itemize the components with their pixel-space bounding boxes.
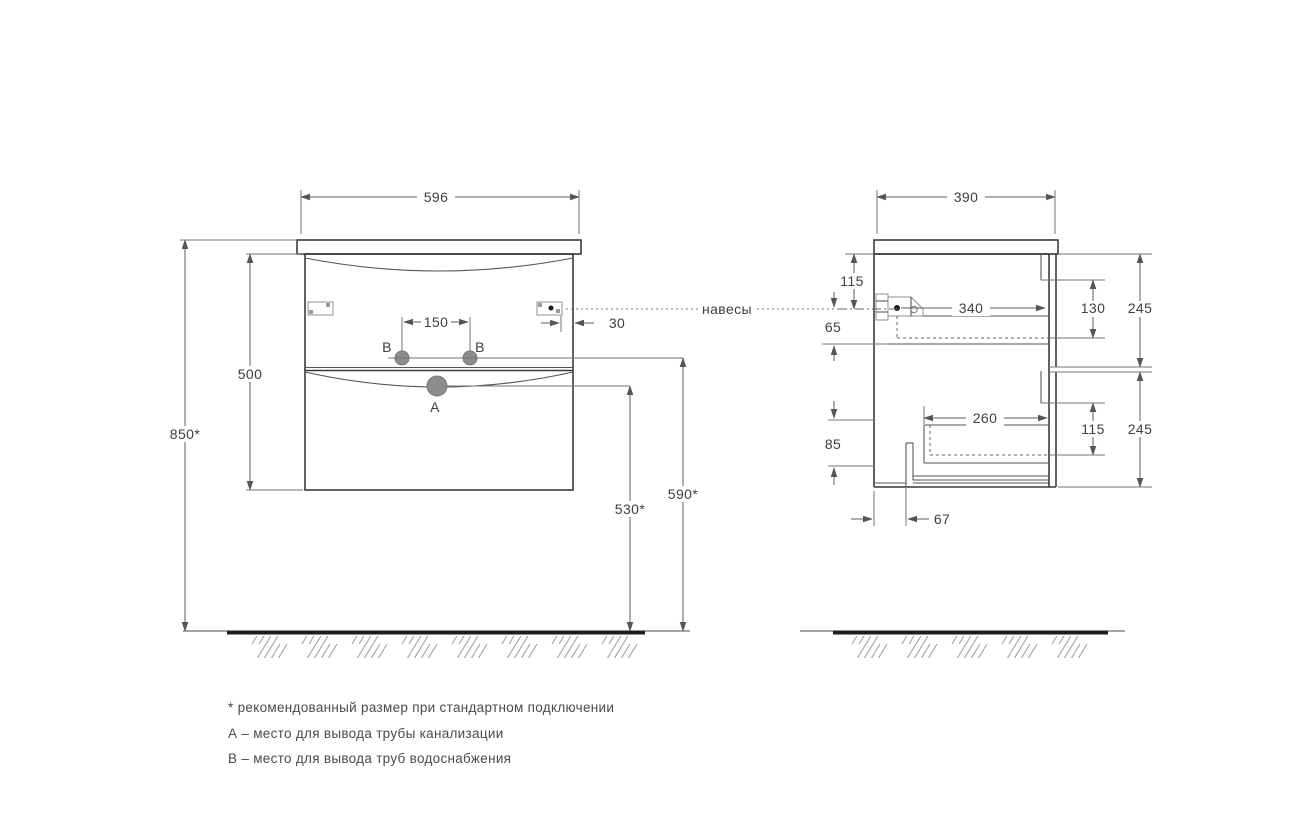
dim-390-label: 390	[954, 189, 979, 205]
floor-hatch-front	[250, 636, 638, 658]
side-countertop	[874, 240, 1058, 254]
dim-596-label: 596	[424, 189, 449, 205]
front-top-drawer-curve	[305, 258, 573, 271]
hinge-plate-left-screw-tr	[326, 303, 330, 307]
hinge-plate-left-screw-bl	[309, 310, 313, 314]
notes: * рекомендованный размер при стандартном…	[228, 700, 614, 766]
front-countertop	[297, 240, 581, 254]
side-view: 390 115 65 340 130 245 260 115 245 85 67	[822, 189, 1158, 527]
floor-side	[800, 631, 1125, 658]
dim-500-label: 500	[238, 366, 263, 382]
hanger-pin	[894, 305, 900, 311]
dim-850-label: 850*	[170, 426, 201, 442]
dim-115-bottom-label: 115	[1081, 421, 1105, 437]
note-asterisk: * рекомендованный размер при стандартном…	[228, 700, 614, 715]
dim-30-label: 30	[609, 315, 625, 331]
dim-590-label: 590*	[668, 486, 699, 502]
hinge-plate-right-screw-tl	[538, 303, 542, 307]
dim-65-label: 65	[825, 319, 841, 335]
note-hole-b: В – место для вывода труб водоснабжения	[228, 751, 511, 766]
hinge-plate-right-pin	[549, 306, 554, 311]
dim-530-label: 530*	[615, 501, 646, 517]
dim-245-bottom-label: 245	[1128, 421, 1153, 437]
floor-front	[183, 631, 690, 658]
dim-150-label: 150	[424, 314, 449, 330]
dim-260-label: 260	[973, 410, 998, 426]
vanity-technical-drawing: B B A	[0, 0, 1300, 836]
side-bottom-drawer	[924, 425, 1049, 463]
drain-hole-a	[427, 376, 447, 396]
front-cabinet-outline	[297, 240, 581, 490]
hanger-plate	[888, 297, 923, 316]
hanger-wall-mount	[876, 294, 888, 320]
floor-hatch-side	[843, 636, 1100, 658]
hole-b-right-label: B	[475, 339, 485, 355]
side-cabinet-outline	[874, 240, 1058, 487]
note-hole-a: А – место для вывода трубы канализации	[228, 726, 504, 741]
hole-a-label: A	[430, 399, 440, 415]
dim-340-label: 340	[959, 300, 984, 316]
hangers-label: навесы	[702, 301, 752, 317]
dim-85-label: 85	[825, 436, 841, 452]
hinge-plate-right-screw-br	[556, 309, 560, 313]
side-hanger-bracket	[876, 294, 923, 320]
dim-67-label: 67	[934, 511, 950, 527]
front-cabinet-body	[305, 254, 573, 490]
front-view: B B A	[163, 189, 706, 631]
mount-holes: B B A	[382, 339, 485, 415]
dim-245-top-label: 245	[1128, 300, 1153, 316]
hole-b-left-label: B	[382, 339, 392, 355]
dim-115-top-label: 115	[840, 273, 864, 289]
dim-130-label: 130	[1081, 300, 1106, 316]
side-top-drawer	[888, 316, 1049, 344]
side-pipe-notch	[906, 443, 1049, 487]
